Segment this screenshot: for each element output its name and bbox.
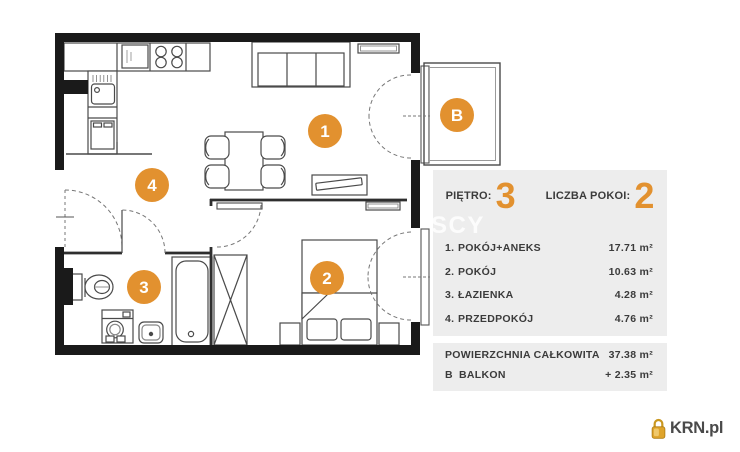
total-area-row: POWIERZCHNIA CAŁKOWITA 37.38 m² [445,345,653,365]
washing-machine [102,310,133,343]
bedroom [214,202,400,345]
floor-group: PIĘTRO: 3 [446,181,516,211]
total-area-value: 37.38 m² [609,349,653,361]
floor-plan-page: 1 2 3 4 B PIĘTRO: 3 LICZBA POKOI: 2 SCY … [0,0,740,452]
room-row: 2. POKÓJ 10.63 m² [445,260,653,284]
room-badge-3-label: 3 [139,279,148,296]
bathroom-sink [139,322,163,343]
living-room [205,42,399,195]
rooms-list: 1. POKÓJ+ANEKS 17.71 m² 2. POKÓJ 10.63 m… [445,236,653,331]
balcony-row-label: BALKON [459,369,605,381]
room-badge-4-label: 4 [147,177,156,194]
rooms-count-label: LICZBA POKOI: [546,190,631,202]
room-number: 4. [445,313,458,325]
bedroom-door [217,203,262,247]
floor-value: 3 [496,181,516,211]
wall-nib [64,80,88,94]
balcony-row-letter: B [445,369,459,381]
bathtub [172,257,212,346]
room-area: 4.76 m² [615,313,653,325]
bathroom-door [122,210,165,253]
sofa [252,42,350,87]
nightstand [280,323,300,345]
window-frames [421,66,429,325]
room-badge-2: 2 [310,261,344,295]
room-area: 10.63 m² [609,266,653,278]
room-area: 17.71 m² [609,242,653,254]
panel-header: PIĘTRO: 3 LICZBA POKOI: 2 [433,178,667,214]
room-name: PRZEDPOKÓJ [458,313,615,325]
krn-logo: KRN.pl [650,417,723,440]
wall-shelf [358,44,399,53]
room-number: 2. [445,266,458,278]
balcony-badge: B [440,98,474,132]
wardrobe [214,255,247,345]
entrance-door [56,190,122,247]
room-badge-1-label: 1 [320,123,329,140]
floor-label: PIĘTRO: [446,190,492,202]
kitchen [64,43,210,154]
tv-cabinet [312,175,367,195]
faucet [95,88,100,93]
balcony-area-value: + 2.35 m² [605,369,653,381]
balcony-area-row: B BALKON + 2.35 m² [445,365,653,385]
room-name: POKÓJ+ANEKS [458,242,609,254]
room-row: 3. ŁAZIENKA 4.28 m² [445,283,653,307]
room-number: 3. [445,289,458,301]
room-badge-2-label: 2 [322,270,331,287]
room-number: 1. [445,242,458,254]
room-name: POKÓJ [458,266,609,278]
kitchen-appliance [122,45,148,68]
bed [302,240,377,345]
total-area-label: POWIERZCHNIA CAŁKOWITA [445,349,609,361]
padlock-icon [650,417,667,440]
toilet [72,274,113,300]
summary-list: POWIERZCHNIA CAŁKOWITA 37.38 m² B BALKON… [445,345,653,385]
bedroom-shelf [366,202,400,210]
plumbing-duct [64,268,73,305]
nightstand [379,323,399,345]
krn-logo-text: KRN.pl [670,419,723,438]
dining-table [225,132,263,190]
room-badge-1: 1 [308,114,342,148]
balcony-badge-label: B [451,107,463,124]
kitchen-sink [92,84,115,104]
rooms-count-group: LICZBA POKOI: 2 [546,181,655,211]
pillow [341,319,371,340]
room-row: 1. POKÓJ+ANEKS 17.71 m² [445,236,653,260]
room-row: 4. PRZEDPOKÓJ 4.76 m² [445,307,653,331]
room-name: ŁAZIENKA [458,289,615,301]
room-area: 4.28 m² [615,289,653,301]
room-badge-4: 4 [135,168,169,202]
rooms-count-value: 2 [634,181,654,211]
room-badge-3: 3 [127,270,161,304]
pillow [307,319,337,340]
